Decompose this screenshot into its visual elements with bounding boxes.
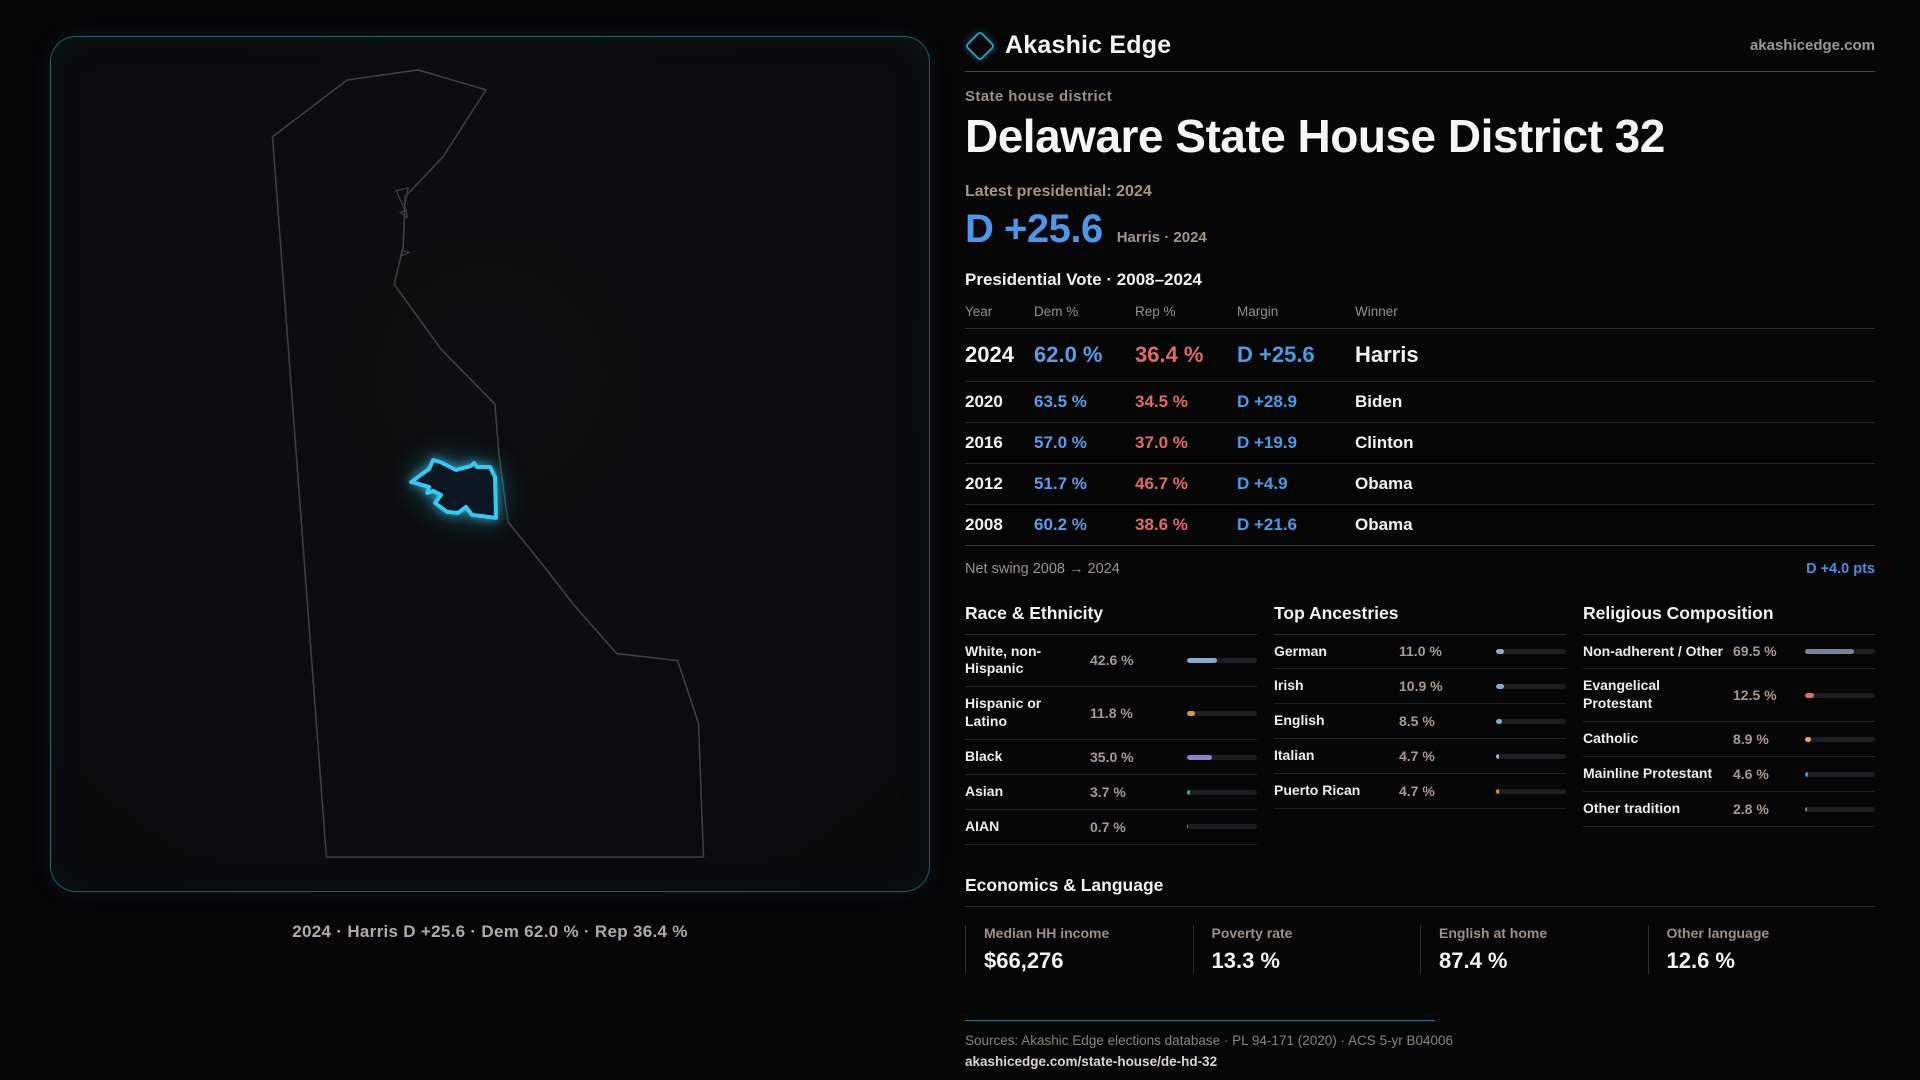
demo-label: Evangelical Protestant (1583, 677, 1733, 713)
vote-table-title: Presidential Vote · 2008–2024 (965, 270, 1875, 290)
demo-bar-fill (1496, 649, 1504, 654)
stat-label: Poverty rate (1212, 925, 1421, 941)
stat-cell: Other language12.6 % (1648, 925, 1876, 974)
brand-domain-link[interactable]: akashicedge.com (1750, 37, 1875, 54)
demo-row: Black35.0 % (965, 740, 1257, 775)
demo-section-title: Top Ancestries (1274, 603, 1566, 635)
demo-row: Catholic8.9 % (1583, 722, 1875, 757)
vote-row-2012: 201251.7 %46.7 %D +4.9Obama (965, 464, 1875, 505)
demo-bar-track (1187, 711, 1257, 716)
demo-value: 0.7 % (1090, 819, 1164, 835)
demo-section-title: Race & Ethnicity (965, 603, 1257, 635)
map-caption: 2024 · Harris D +25.6 · Dem 62.0 % · Rep… (50, 922, 930, 942)
demo-bar-fill (1187, 790, 1190, 795)
stat-value: 12.6 % (1667, 948, 1876, 974)
demo-bar-track (1496, 649, 1566, 654)
demo-label: AIAN (965, 818, 1087, 836)
brand-diamond-icon (964, 30, 995, 61)
cell-margin: D +4.9 (1237, 474, 1355, 494)
brand-name: Akashic Edge (1005, 31, 1171, 60)
demo-row: English8.5 % (1274, 704, 1566, 739)
sources-text: Sources: Akashic Edge elections database… (965, 1033, 1875, 1048)
demo-bar-track (1187, 824, 1257, 829)
demo-label: Puerto Rican (1274, 782, 1396, 800)
demo-bar-track (1496, 719, 1566, 724)
stat-cell: Median HH income$66,276 (965, 925, 1193, 974)
demo-bar-fill (1187, 658, 1217, 663)
demo-bar-track (1187, 790, 1257, 795)
footer-divider (965, 1020, 1435, 1021)
cell-winner: Clinton (1355, 433, 1875, 453)
demo-row: Evangelical Protestant12.5 % (1583, 669, 1875, 722)
col-header-year: Year (965, 304, 1034, 319)
demo-row: Non-adherent / Other69.5 % (1583, 635, 1875, 670)
demo-section: Race & EthnicityWhite, non-Hispanic42.6 … (965, 603, 1257, 845)
demo-label: Asian (965, 783, 1087, 801)
demo-label: Mainline Protestant (1583, 765, 1733, 783)
cell-winner: Obama (1355, 515, 1875, 535)
district-type-eyebrow: State house district (965, 88, 1875, 105)
demo-bar-fill (1805, 737, 1811, 742)
demo-row: AIAN0.7 % (965, 810, 1257, 845)
demo-row: Asian3.7 % (965, 775, 1257, 810)
demo-row: Irish10.9 % (1274, 669, 1566, 704)
demo-section: Religious CompositionNon-adherent / Othe… (1583, 603, 1875, 845)
col-header-dem: Dem % (1034, 304, 1135, 319)
cell-dem: 57.0 % (1034, 433, 1135, 453)
vote-row-2008: 200860.2 %38.6 %D +21.6Obama (965, 505, 1875, 546)
headline-margin-value: D +25.6 (965, 207, 1103, 252)
state-boundary-outline (273, 70, 704, 857)
stat-label: Median HH income (984, 925, 1193, 941)
cell-dem: 63.5 % (1034, 392, 1135, 412)
demo-bar-fill (1496, 719, 1502, 724)
demo-bar-fill (1805, 649, 1854, 654)
demo-value: 2.8 % (1733, 801, 1803, 817)
demo-label: Non-adherent / Other (1583, 643, 1733, 661)
demo-bar-track (1805, 649, 1875, 654)
headline-margin-context: Harris · 2024 (1117, 229, 1207, 246)
cell-margin: D +28.9 (1237, 392, 1355, 412)
demo-bar-track (1496, 754, 1566, 759)
demo-value: 3.7 % (1090, 784, 1164, 800)
cell-margin: D +25.6 (1237, 342, 1355, 368)
demo-value: 4.7 % (1399, 783, 1473, 799)
demo-value: 35.0 % (1090, 749, 1164, 765)
cell-dem: 51.7 % (1034, 474, 1135, 494)
page-title: Delaware State House District 32 (965, 111, 1875, 163)
demo-label: Other tradition (1583, 800, 1733, 818)
demo-bar-track (1496, 684, 1566, 689)
demo-row: German11.0 % (1274, 635, 1566, 670)
vote-table-body: 202462.0 %36.4 %D +25.6Harris202063.5 %3… (965, 329, 1875, 546)
cell-winner: Obama (1355, 474, 1875, 494)
demo-row: Hispanic or Latino11.8 % (965, 687, 1257, 740)
demo-value: 12.5 % (1733, 687, 1803, 703)
stat-value: 13.3 % (1212, 948, 1421, 974)
demo-label: Black (965, 748, 1087, 766)
cell-rep: 46.7 % (1135, 474, 1237, 494)
river-islet (396, 188, 408, 209)
permalink-url[interactable]: akashicedge.com/state-house/de-hd-32 (965, 1054, 1875, 1069)
highlighted-district-32-shape[interactable] (411, 460, 496, 518)
demo-label: White, non-Hispanic (965, 643, 1087, 679)
col-header-margin: Margin (1237, 304, 1355, 319)
demo-bar-fill (1187, 711, 1195, 716)
stat-value: $66,276 (984, 948, 1193, 974)
latest-presidential-label: Latest presidential: 2024 (965, 183, 1875, 201)
net-swing-value: D +4.0 pts (1806, 561, 1875, 577)
demo-bar-track (1805, 693, 1875, 698)
demo-bar-fill (1496, 789, 1499, 794)
stat-cell: English at home87.4 % (1420, 925, 1648, 974)
vote-row-2016: 201657.0 %37.0 %D +19.9Clinton (965, 423, 1875, 464)
demo-row: Mainline Protestant4.6 % (1583, 757, 1875, 792)
demo-value: 8.9 % (1733, 731, 1803, 747)
demo-value: 69.5 % (1733, 643, 1803, 659)
stat-label: Other language (1667, 925, 1876, 941)
demo-bar-fill (1496, 754, 1499, 759)
stat-value: 87.4 % (1439, 948, 1648, 974)
footer: Sources: Akashic Edge elections database… (965, 1020, 1875, 1069)
demo-bar-fill (1805, 772, 1808, 777)
headline-margin-row: D +25.6 Harris · 2024 (965, 207, 1875, 252)
demo-bar-track (1187, 658, 1257, 663)
col-header-winner: Winner (1355, 304, 1875, 319)
cell-winner: Harris (1355, 342, 1875, 368)
cell-margin: D +21.6 (1237, 515, 1355, 535)
cell-dem: 62.0 % (1034, 342, 1135, 368)
demo-bar-track (1496, 789, 1566, 794)
river-islet-tiny (402, 251, 409, 256)
col-header-rep: Rep % (1135, 304, 1237, 319)
economics-title: Economics & Language (965, 875, 1875, 907)
vote-row-2020: 202063.5 %34.5 %D +28.9Biden (965, 382, 1875, 423)
demo-row: White, non-Hispanic42.6 % (965, 635, 1257, 688)
demo-label: German (1274, 643, 1396, 661)
demo-bar-fill (1496, 684, 1504, 689)
demo-row: Italian4.7 % (1274, 739, 1566, 774)
demo-bar-fill (1805, 693, 1814, 698)
demo-label: Irish (1274, 677, 1396, 695)
vote-row-2024: 202462.0 %36.4 %D +25.6Harris (965, 329, 1875, 382)
cell-year: 2016 (965, 433, 1034, 453)
demo-value: 11.0 % (1399, 643, 1473, 659)
demo-bar-fill (1187, 755, 1212, 760)
net-swing-row: Net swing 2008 → 2024 D +4.0 pts (965, 546, 1875, 577)
demo-bar-track (1805, 772, 1875, 777)
demo-section-title: Religious Composition (1583, 603, 1875, 635)
header: Akashic Edge akashicedge.com (965, 28, 1875, 72)
district-map-panel (50, 36, 930, 892)
stat-cell: Poverty rate13.3 % (1193, 925, 1421, 974)
demo-value: 42.6 % (1090, 652, 1164, 668)
cell-year: 2012 (965, 474, 1034, 494)
cell-year: 2008 (965, 515, 1034, 535)
stat-label: English at home (1439, 925, 1648, 941)
economics-stats-row: Median HH income$66,276Poverty rate13.3 … (965, 925, 1875, 974)
cell-year: 2024 (965, 342, 1034, 368)
net-swing-label: Net swing 2008 → 2024 (965, 561, 1120, 577)
cell-rep: 36.4 % (1135, 342, 1237, 368)
demo-bar-fill (1805, 807, 1807, 812)
demo-row: Other tradition2.8 % (1583, 792, 1875, 827)
demo-label: Hispanic or Latino (965, 695, 1087, 731)
demo-label: Catholic (1583, 730, 1733, 748)
demographics-grid: Race & EthnicityWhite, non-Hispanic42.6 … (965, 603, 1875, 845)
delaware-map (51, 37, 929, 891)
demo-label: Italian (1274, 747, 1396, 765)
cell-rep: 38.6 % (1135, 515, 1237, 535)
detail-panel: Akashic Edge akashicedge.com State house… (965, 28, 1875, 1069)
demo-value: 8.5 % (1399, 713, 1473, 729)
demo-value: 10.9 % (1399, 678, 1473, 694)
demo-value: 4.6 % (1733, 766, 1803, 782)
demo-row: Puerto Rican4.7 % (1274, 774, 1566, 809)
demo-section: Top AncestriesGerman11.0 %Irish10.9 %Eng… (1274, 603, 1566, 845)
cell-rep: 37.0 % (1135, 433, 1237, 453)
demo-bar-track (1187, 755, 1257, 760)
cell-dem: 60.2 % (1034, 515, 1135, 535)
demo-value: 4.7 % (1399, 748, 1473, 764)
demo-bar-track (1805, 737, 1875, 742)
cell-year: 2020 (965, 392, 1034, 412)
vote-table-header: Year Dem % Rep % Margin Winner (965, 304, 1875, 329)
cell-margin: D +19.9 (1237, 433, 1355, 453)
demo-label: English (1274, 712, 1396, 730)
cell-winner: Biden (1355, 392, 1875, 412)
cell-rep: 34.5 % (1135, 392, 1237, 412)
demo-value: 11.8 % (1090, 705, 1164, 721)
demo-bar-track (1805, 807, 1875, 812)
